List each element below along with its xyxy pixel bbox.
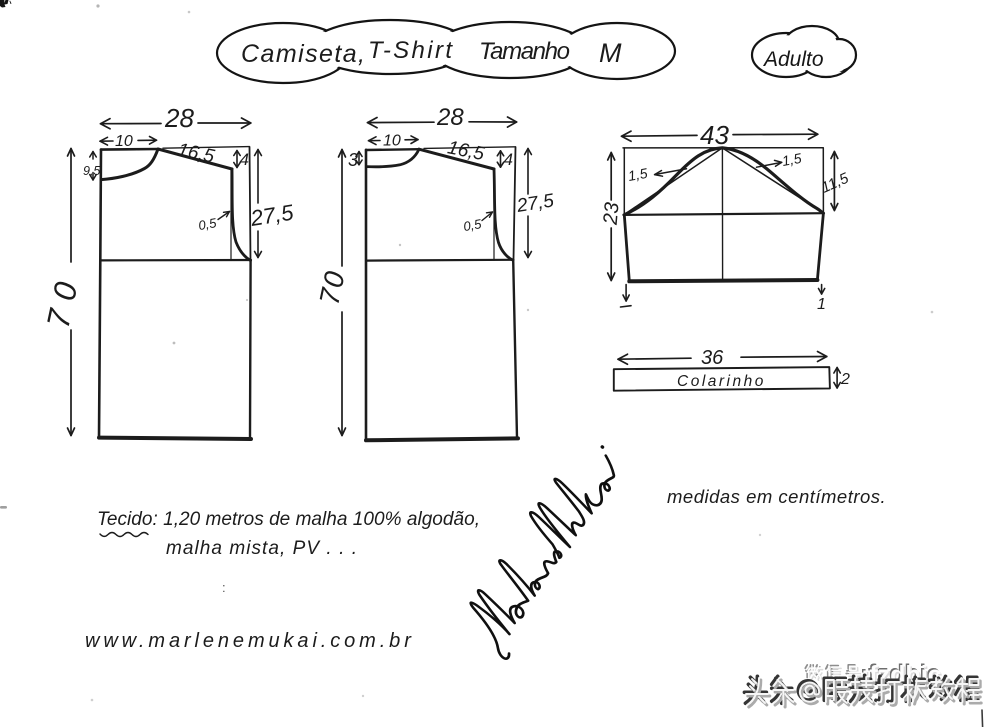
svg-text:2: 2	[840, 371, 850, 388]
svg-text:28: 28	[164, 103, 194, 133]
svg-text:4: 4	[504, 150, 513, 169]
svg-text:16,5: 16,5	[446, 137, 487, 165]
svg-text:10: 10	[115, 133, 133, 150]
svg-text:Colarinho: Colarinho	[677, 373, 766, 390]
svg-text:0,5: 0,5	[462, 216, 483, 234]
svg-text:27,5: 27,5	[248, 199, 296, 231]
svg-text:70: 70	[40, 279, 85, 332]
svg-text:9,5: 9,5	[83, 164, 100, 178]
svg-text:23: 23	[600, 201, 624, 226]
svg-text:28: 28	[436, 104, 464, 131]
svg-text:43: 43	[700, 120, 729, 150]
svg-text:medidas em centímetros.: medidas em centímetros.	[667, 486, 886, 507]
svg-text:M: M	[599, 38, 622, 68]
svg-text:Adulto: Adulto	[762, 48, 824, 71]
svg-text:4: 4	[240, 150, 249, 169]
svg-text:Tecido: 1,20 metros de malha 1: Tecido: 1,20 metros de malha 100% algodã…	[97, 509, 480, 530]
svg-text:0,5: 0,5	[197, 215, 218, 233]
svg-text:36: 36	[701, 347, 724, 369]
svg-text:10: 10	[383, 133, 401, 150]
svg-text:Tamanho: Tamanho	[479, 38, 570, 65]
svg-text:16,5: 16,5	[176, 139, 217, 167]
svg-text:www.marlenemukai.com.br: www.marlenemukai.com.br	[85, 630, 415, 652]
svg-text::: :	[222, 580, 226, 595]
svg-text:1,5: 1,5	[627, 165, 649, 184]
svg-text:27,5: 27,5	[515, 190, 556, 217]
svg-text:3: 3	[348, 150, 358, 170]
svg-text:70: 70	[313, 268, 350, 307]
svg-text:1: 1	[817, 296, 826, 313]
svg-text:malha mista, PV . . .: malha mista, PV . . .	[166, 538, 357, 559]
svg-text:Camiseta,: Camiseta,	[241, 40, 365, 68]
svg-text:1,5: 1,5	[781, 150, 803, 169]
